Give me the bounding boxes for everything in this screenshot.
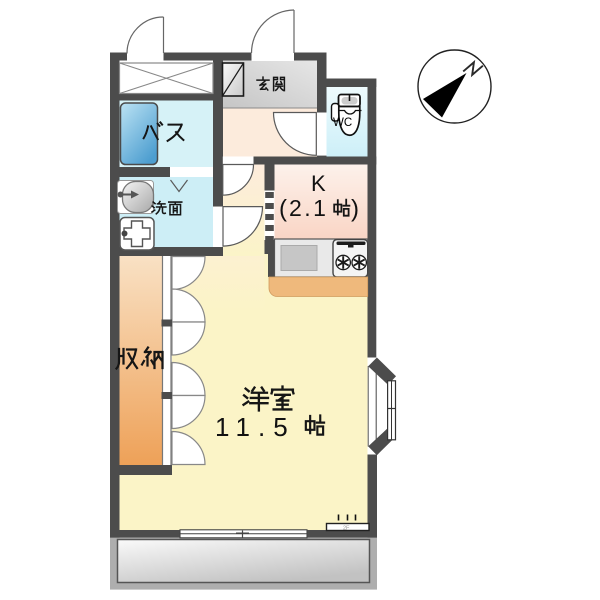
svg-text:K: K: [311, 171, 326, 196]
svg-text:2.1: 2.1: [289, 195, 328, 221]
svg-text:(: (: [279, 196, 287, 223]
svg-text:11.5: 11.5: [215, 412, 296, 442]
svg-text:): ): [351, 196, 359, 223]
svg-text:WC: WC: [333, 117, 352, 129]
svg-text:2F: 2F: [343, 525, 350, 531]
